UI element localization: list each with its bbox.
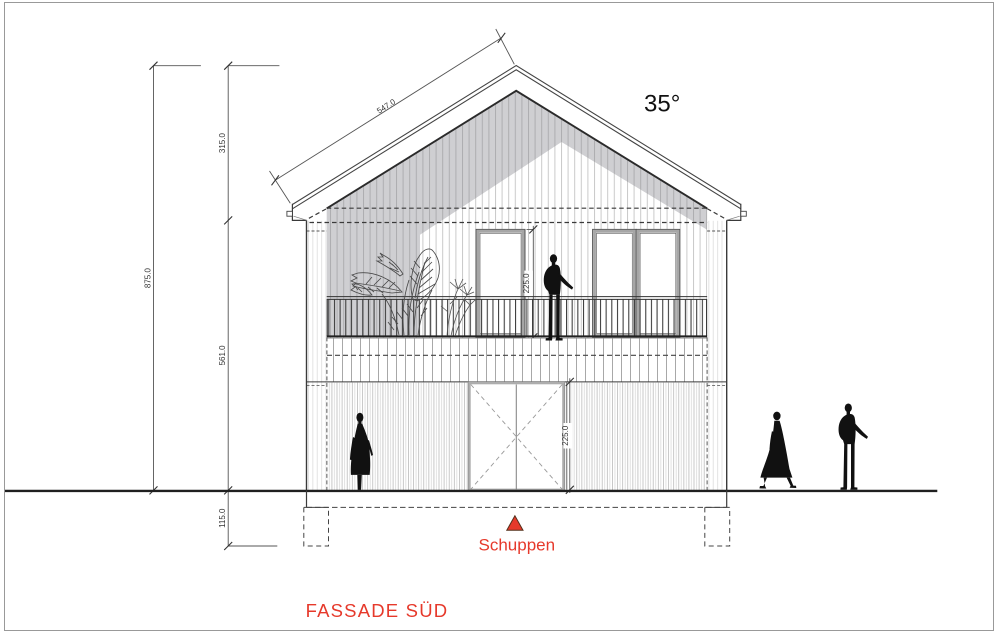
svg-text:225.0: 225.0	[522, 273, 531, 294]
svg-text:315.0: 315.0	[218, 133, 227, 154]
svg-text:35°: 35°	[644, 91, 680, 118]
svg-text:115.0: 115.0	[218, 508, 227, 528]
svg-text:875.0: 875.0	[143, 268, 152, 289]
svg-text:FASSADE SÜD: FASSADE SÜD	[306, 600, 449, 621]
svg-text:Schuppen: Schuppen	[479, 535, 556, 554]
svg-text:225.0: 225.0	[561, 425, 570, 446]
svg-text:561.0: 561.0	[218, 345, 227, 366]
